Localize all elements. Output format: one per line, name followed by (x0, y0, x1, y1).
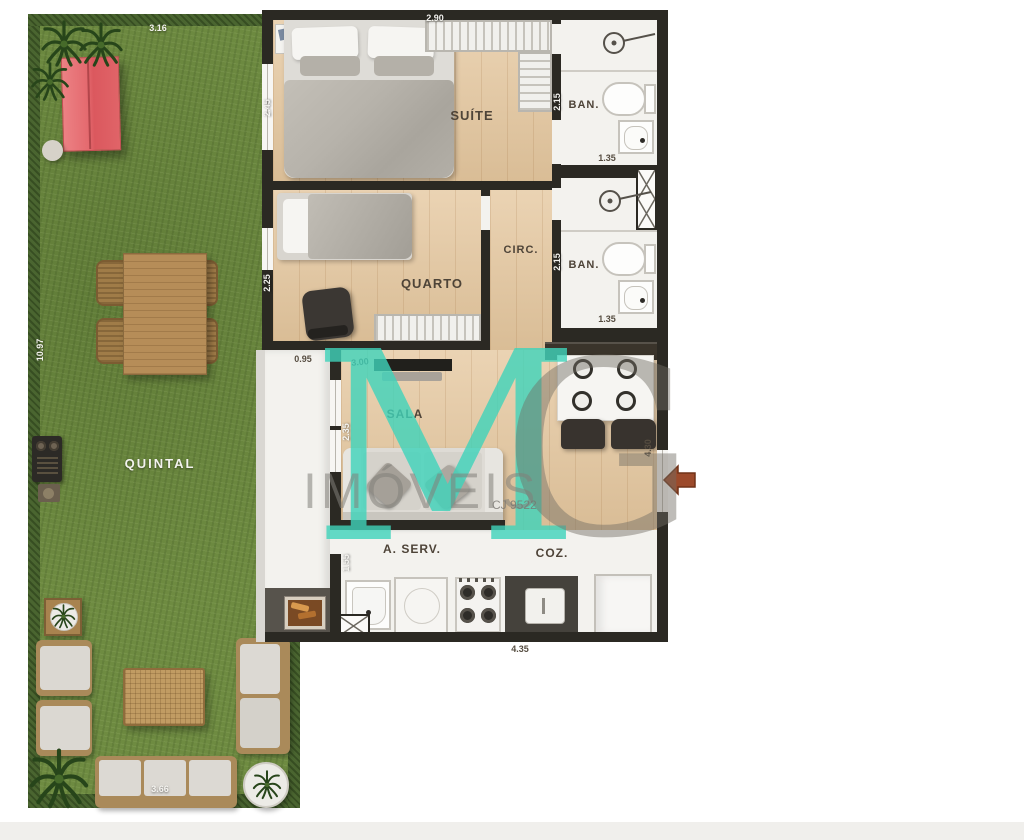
room-label-suite: SUÍTE (432, 108, 512, 123)
stove-burner (481, 608, 496, 623)
wall (262, 10, 668, 20)
wardrobe (425, 20, 552, 52)
door-opening (552, 120, 561, 164)
entry-arrow-icon (662, 462, 696, 498)
tv (374, 359, 452, 371)
dim-sala-depth: 2.35 (340, 412, 352, 452)
bed-blanket (308, 194, 412, 259)
wall (657, 10, 668, 642)
wall (341, 520, 505, 530)
wardrobe (374, 314, 481, 342)
room-label-aserv: A. SERV. (372, 542, 452, 556)
sofa-cushion (99, 760, 141, 796)
dim-yard-top: 3.16 (138, 22, 178, 34)
coffee-table (123, 668, 205, 726)
wardrobe (518, 52, 552, 112)
washer-lid (404, 588, 440, 624)
potted-plant-icon (252, 770, 282, 800)
sofa-cushion (240, 698, 280, 748)
bbq-shelf-pot (43, 488, 54, 499)
door-opening (552, 24, 561, 54)
room-label-coz: COZ. (527, 546, 577, 560)
plate (617, 359, 637, 379)
refrigerator (594, 574, 652, 636)
armchair-cushion (40, 646, 90, 690)
footer-strip (0, 822, 1024, 840)
outdoor-table (123, 253, 207, 375)
toilet-bowl (602, 242, 646, 276)
dim-ban2-depth: 2.15 (551, 242, 563, 282)
kitchen-sink (525, 588, 565, 624)
room-label-circ: CIRC. (496, 244, 546, 256)
room-label-quarto: QUARTO (392, 276, 472, 291)
door-opening (552, 188, 561, 220)
shower-head-icon (600, 28, 656, 58)
dim-ban1-width: 1.35 (587, 152, 627, 164)
stove-burner (460, 585, 475, 600)
shower-divider (561, 70, 657, 72)
dim-kitchen-depth: 4.30 (642, 428, 654, 468)
dining-table (557, 355, 654, 421)
palm-plant-icon (28, 748, 90, 810)
dim-kitchen-width: 4.35 (500, 643, 540, 655)
bed-cushion (300, 56, 360, 76)
bed-pillow (291, 26, 358, 60)
plate (616, 391, 636, 411)
dining-chair (561, 419, 605, 449)
plate (572, 391, 592, 411)
wall (273, 341, 481, 350)
tv-console (382, 372, 442, 381)
room-label-ban1: BAN. (564, 99, 604, 111)
stepping-stone (42, 140, 63, 161)
circ-floor (490, 190, 552, 350)
armchair-cushion (40, 706, 90, 750)
room-label-sala: SALA (375, 407, 435, 421)
dim-suite-depth: 2.45 (261, 88, 273, 128)
wall (552, 20, 561, 342)
palm-plant-icon (30, 62, 70, 102)
sink-faucet (542, 598, 545, 614)
palm-plant-icon (78, 22, 124, 68)
bbq-vents (37, 456, 58, 474)
stove-burner (481, 585, 496, 600)
room-label-quintal: QUINTAL (110, 456, 210, 471)
door-opening (481, 196, 490, 230)
wall (552, 328, 657, 342)
bbq-grate (49, 441, 59, 451)
bed-duvet (284, 80, 454, 178)
floor-plan: QUINTAL SUÍTE QUARTO CIRC. BAN. BAN. SAL… (0, 0, 1024, 840)
plate (573, 359, 593, 379)
shower-head-icon (596, 186, 652, 216)
stove-knobs (459, 578, 497, 582)
toilet-bowl (602, 82, 646, 116)
stove-burner (460, 608, 475, 623)
sink-drain (640, 138, 645, 143)
dim-suite-width: 2.90 (415, 12, 455, 24)
sofa-cushion (189, 760, 231, 796)
dim-quarto-depth: 2.25 (261, 263, 273, 303)
dim-yard-left: 10.97 (34, 330, 46, 370)
dim-ban2-width: 1.35 (587, 313, 627, 325)
bbq-grate (36, 441, 46, 451)
stove (455, 577, 501, 633)
dim-aserv-depth: 1.55 (340, 543, 352, 583)
sofa-cushion (240, 644, 280, 694)
wall (273, 181, 557, 190)
dim-ban1-depth: 2.15 (551, 82, 563, 122)
potted-plant-icon (51, 604, 76, 629)
room-label-ban2: BAN. (564, 259, 604, 271)
shower-divider (561, 230, 657, 232)
dim-corridor-width: 0.95 (283, 353, 323, 365)
sink-drain (640, 298, 645, 303)
bed-cushion (374, 56, 434, 76)
wall (265, 632, 668, 642)
dim-yard-bottom: 3.66 (140, 783, 180, 795)
